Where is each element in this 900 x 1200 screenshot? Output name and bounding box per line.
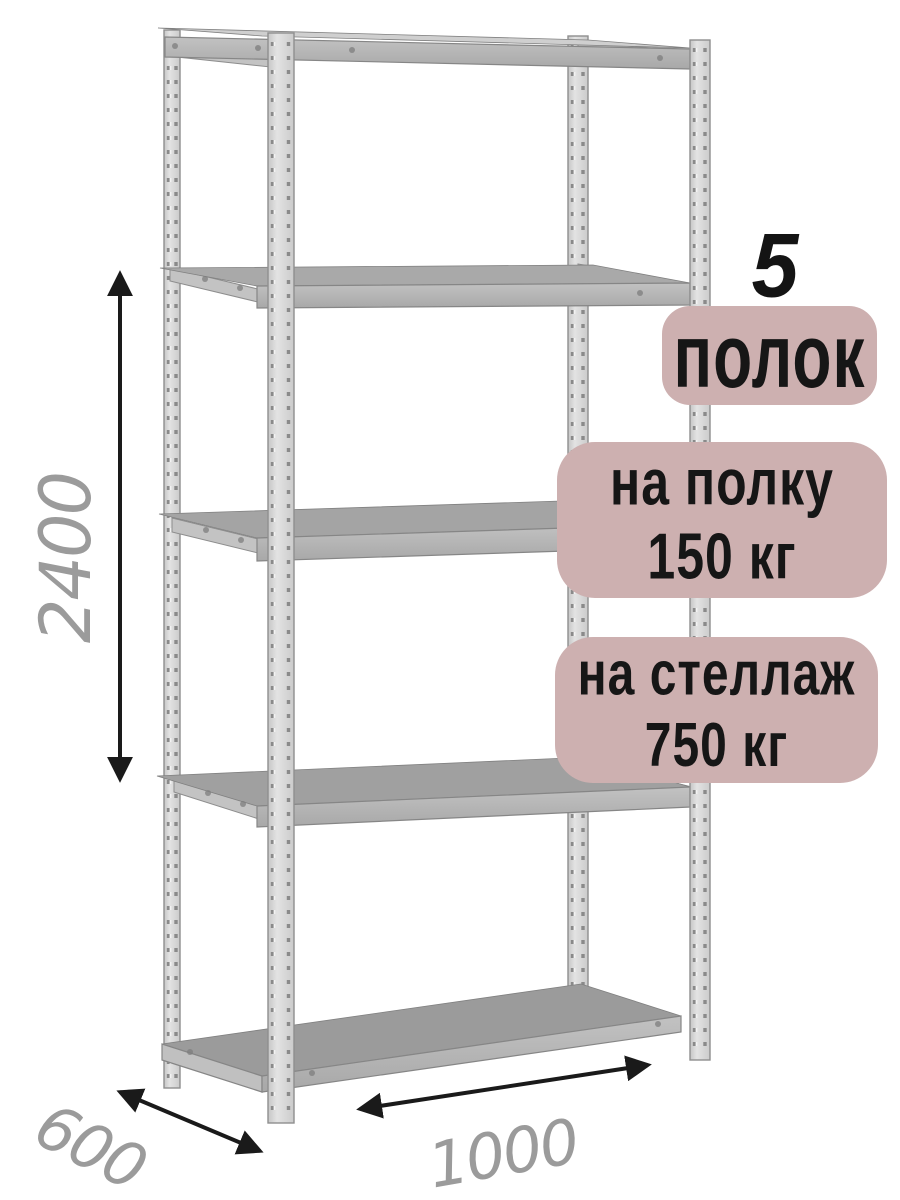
shelf-count-number: 5 xyxy=(725,212,825,318)
shelf-count-label: полок xyxy=(673,304,865,408)
shelf-count-badge: полок xyxy=(662,306,877,405)
height-dimension-label: 2400 xyxy=(21,438,111,678)
product-image: 2400 600 1000 5 полок на полку 150 кг на… xyxy=(0,0,900,1200)
shelf-2 xyxy=(160,264,700,308)
shelf-load-line1: на полку xyxy=(610,446,834,519)
shelving-rack-illustration xyxy=(0,0,900,1200)
shelf-load-line2: 150 кг xyxy=(647,520,796,593)
shelf-5 xyxy=(162,984,681,1092)
shelf-load-badge: на полку 150 кг xyxy=(557,442,887,598)
rack-load-line2: 750 кг xyxy=(645,711,788,780)
rack-load-badge: на стеллаж 750 кг xyxy=(555,637,878,783)
shelf-1 xyxy=(158,28,700,69)
rack-load-line1: на стеллаж xyxy=(578,640,856,709)
front-left-post xyxy=(268,33,294,1123)
back-left-post xyxy=(164,30,180,1088)
